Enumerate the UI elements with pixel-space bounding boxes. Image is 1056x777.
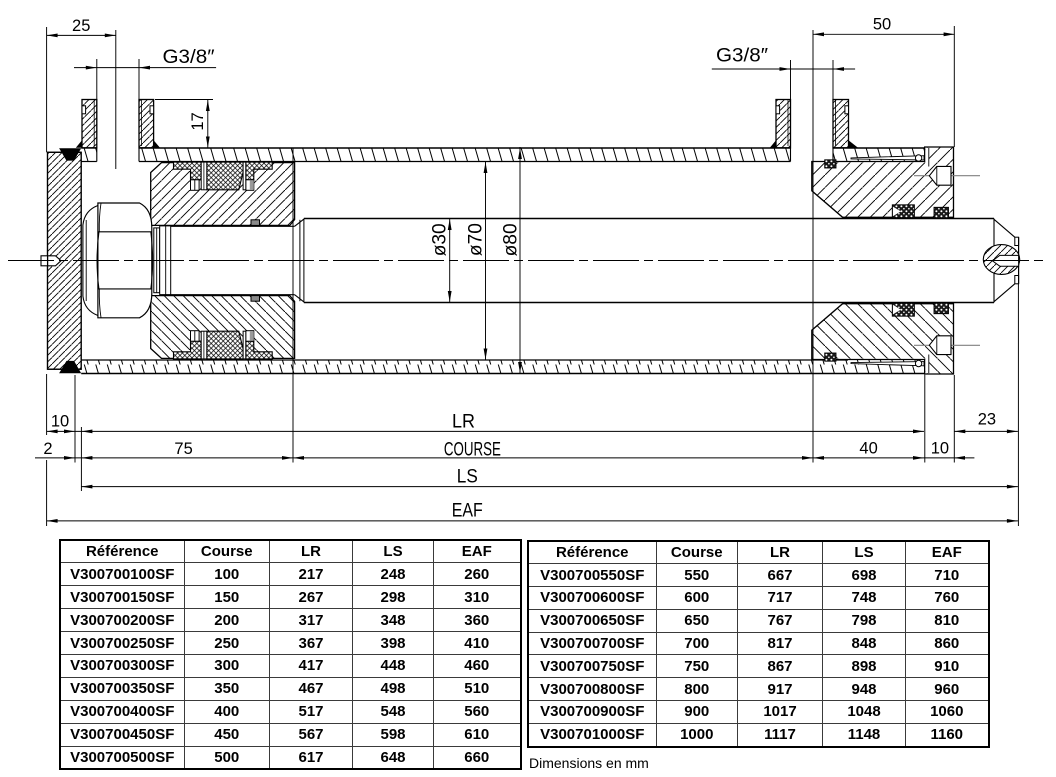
svg-text:EAF: EAF <box>452 500 483 521</box>
svg-text:LR: LR <box>452 411 475 432</box>
svg-text:G3/8″: G3/8″ <box>716 46 768 67</box>
svg-text:50: 50 <box>873 16 891 34</box>
svg-text:17: 17 <box>189 112 207 130</box>
svg-text:G3/8″: G3/8″ <box>163 47 215 68</box>
svg-text:25: 25 <box>72 17 90 35</box>
svg-text:40: 40 <box>859 440 877 458</box>
svg-text:COURSE: COURSE <box>444 439 501 460</box>
svg-text:ø80: ø80 <box>501 223 522 256</box>
svg-text:2: 2 <box>43 440 52 458</box>
svg-text:23: 23 <box>978 411 996 429</box>
svg-text:10: 10 <box>51 413 69 431</box>
svg-text:ø70: ø70 <box>466 223 487 256</box>
svg-text:10: 10 <box>931 440 949 458</box>
svg-text:75: 75 <box>174 440 192 458</box>
svg-text:LS: LS <box>457 467 478 488</box>
svg-text:ø30: ø30 <box>430 223 451 256</box>
